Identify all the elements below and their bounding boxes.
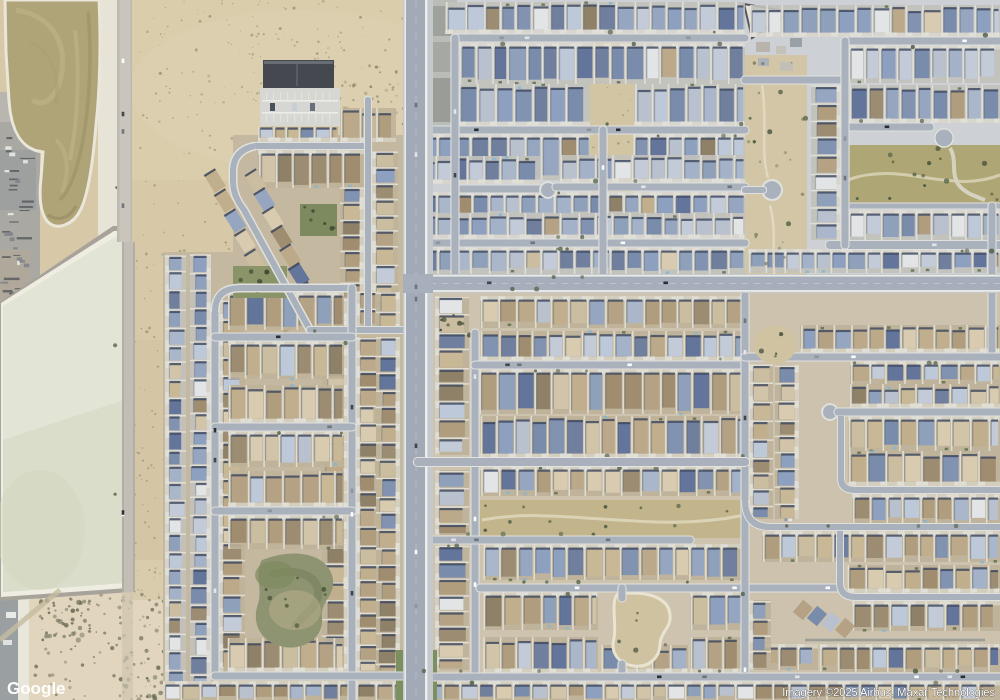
svg-text:Imagery ©2025 Airbus, Maxar Te: Imagery ©2025 Airbus, Maxar Technologies	[782, 686, 995, 698]
svg-text:Google: Google	[7, 679, 66, 698]
